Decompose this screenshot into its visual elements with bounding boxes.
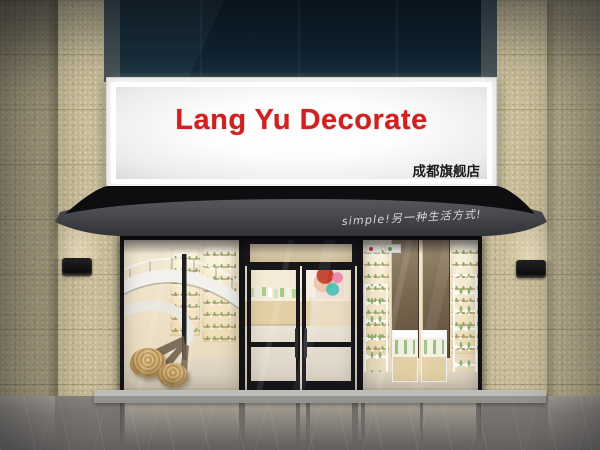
floor-reflection-streak bbox=[296, 402, 300, 446]
threshold-step bbox=[94, 390, 546, 403]
sign-lightbox: Lang Yu Decorate 成都旗舰店 bbox=[106, 77, 497, 189]
floor-reflection-streak bbox=[420, 402, 423, 446]
window-glass bbox=[124, 240, 239, 392]
right-wall-lamp bbox=[516, 260, 546, 278]
left-display-window bbox=[124, 240, 239, 392]
floor-reflection-streak bbox=[239, 402, 245, 446]
door-glass bbox=[245, 240, 357, 392]
left-wall-lamp bbox=[62, 258, 92, 276]
sign-title: Lang Yu Decorate bbox=[107, 104, 496, 137]
window-glass bbox=[363, 240, 478, 392]
storefront-frame bbox=[120, 236, 482, 396]
storefront-render: Lang Yu Decorate 成都旗舰店 simple!另一种生活方式! bbox=[0, 0, 600, 450]
floor-reflection-streak bbox=[361, 402, 365, 446]
right-column-inner-face bbox=[481, 0, 497, 82]
awning: simple!另一种生活方式! bbox=[30, 176, 570, 242]
entrance bbox=[245, 240, 357, 392]
floor-reflection-streak bbox=[352, 402, 358, 446]
column-reflection bbox=[55, 396, 122, 450]
left-column-inner-face bbox=[104, 0, 120, 82]
storefront-reflection bbox=[124, 402, 478, 442]
entry-floor bbox=[0, 396, 600, 450]
upper-curtain-wall bbox=[104, 0, 497, 82]
right-display-window bbox=[363, 240, 478, 392]
column-reflection bbox=[480, 396, 548, 450]
floor-reflection-streak bbox=[306, 402, 310, 446]
